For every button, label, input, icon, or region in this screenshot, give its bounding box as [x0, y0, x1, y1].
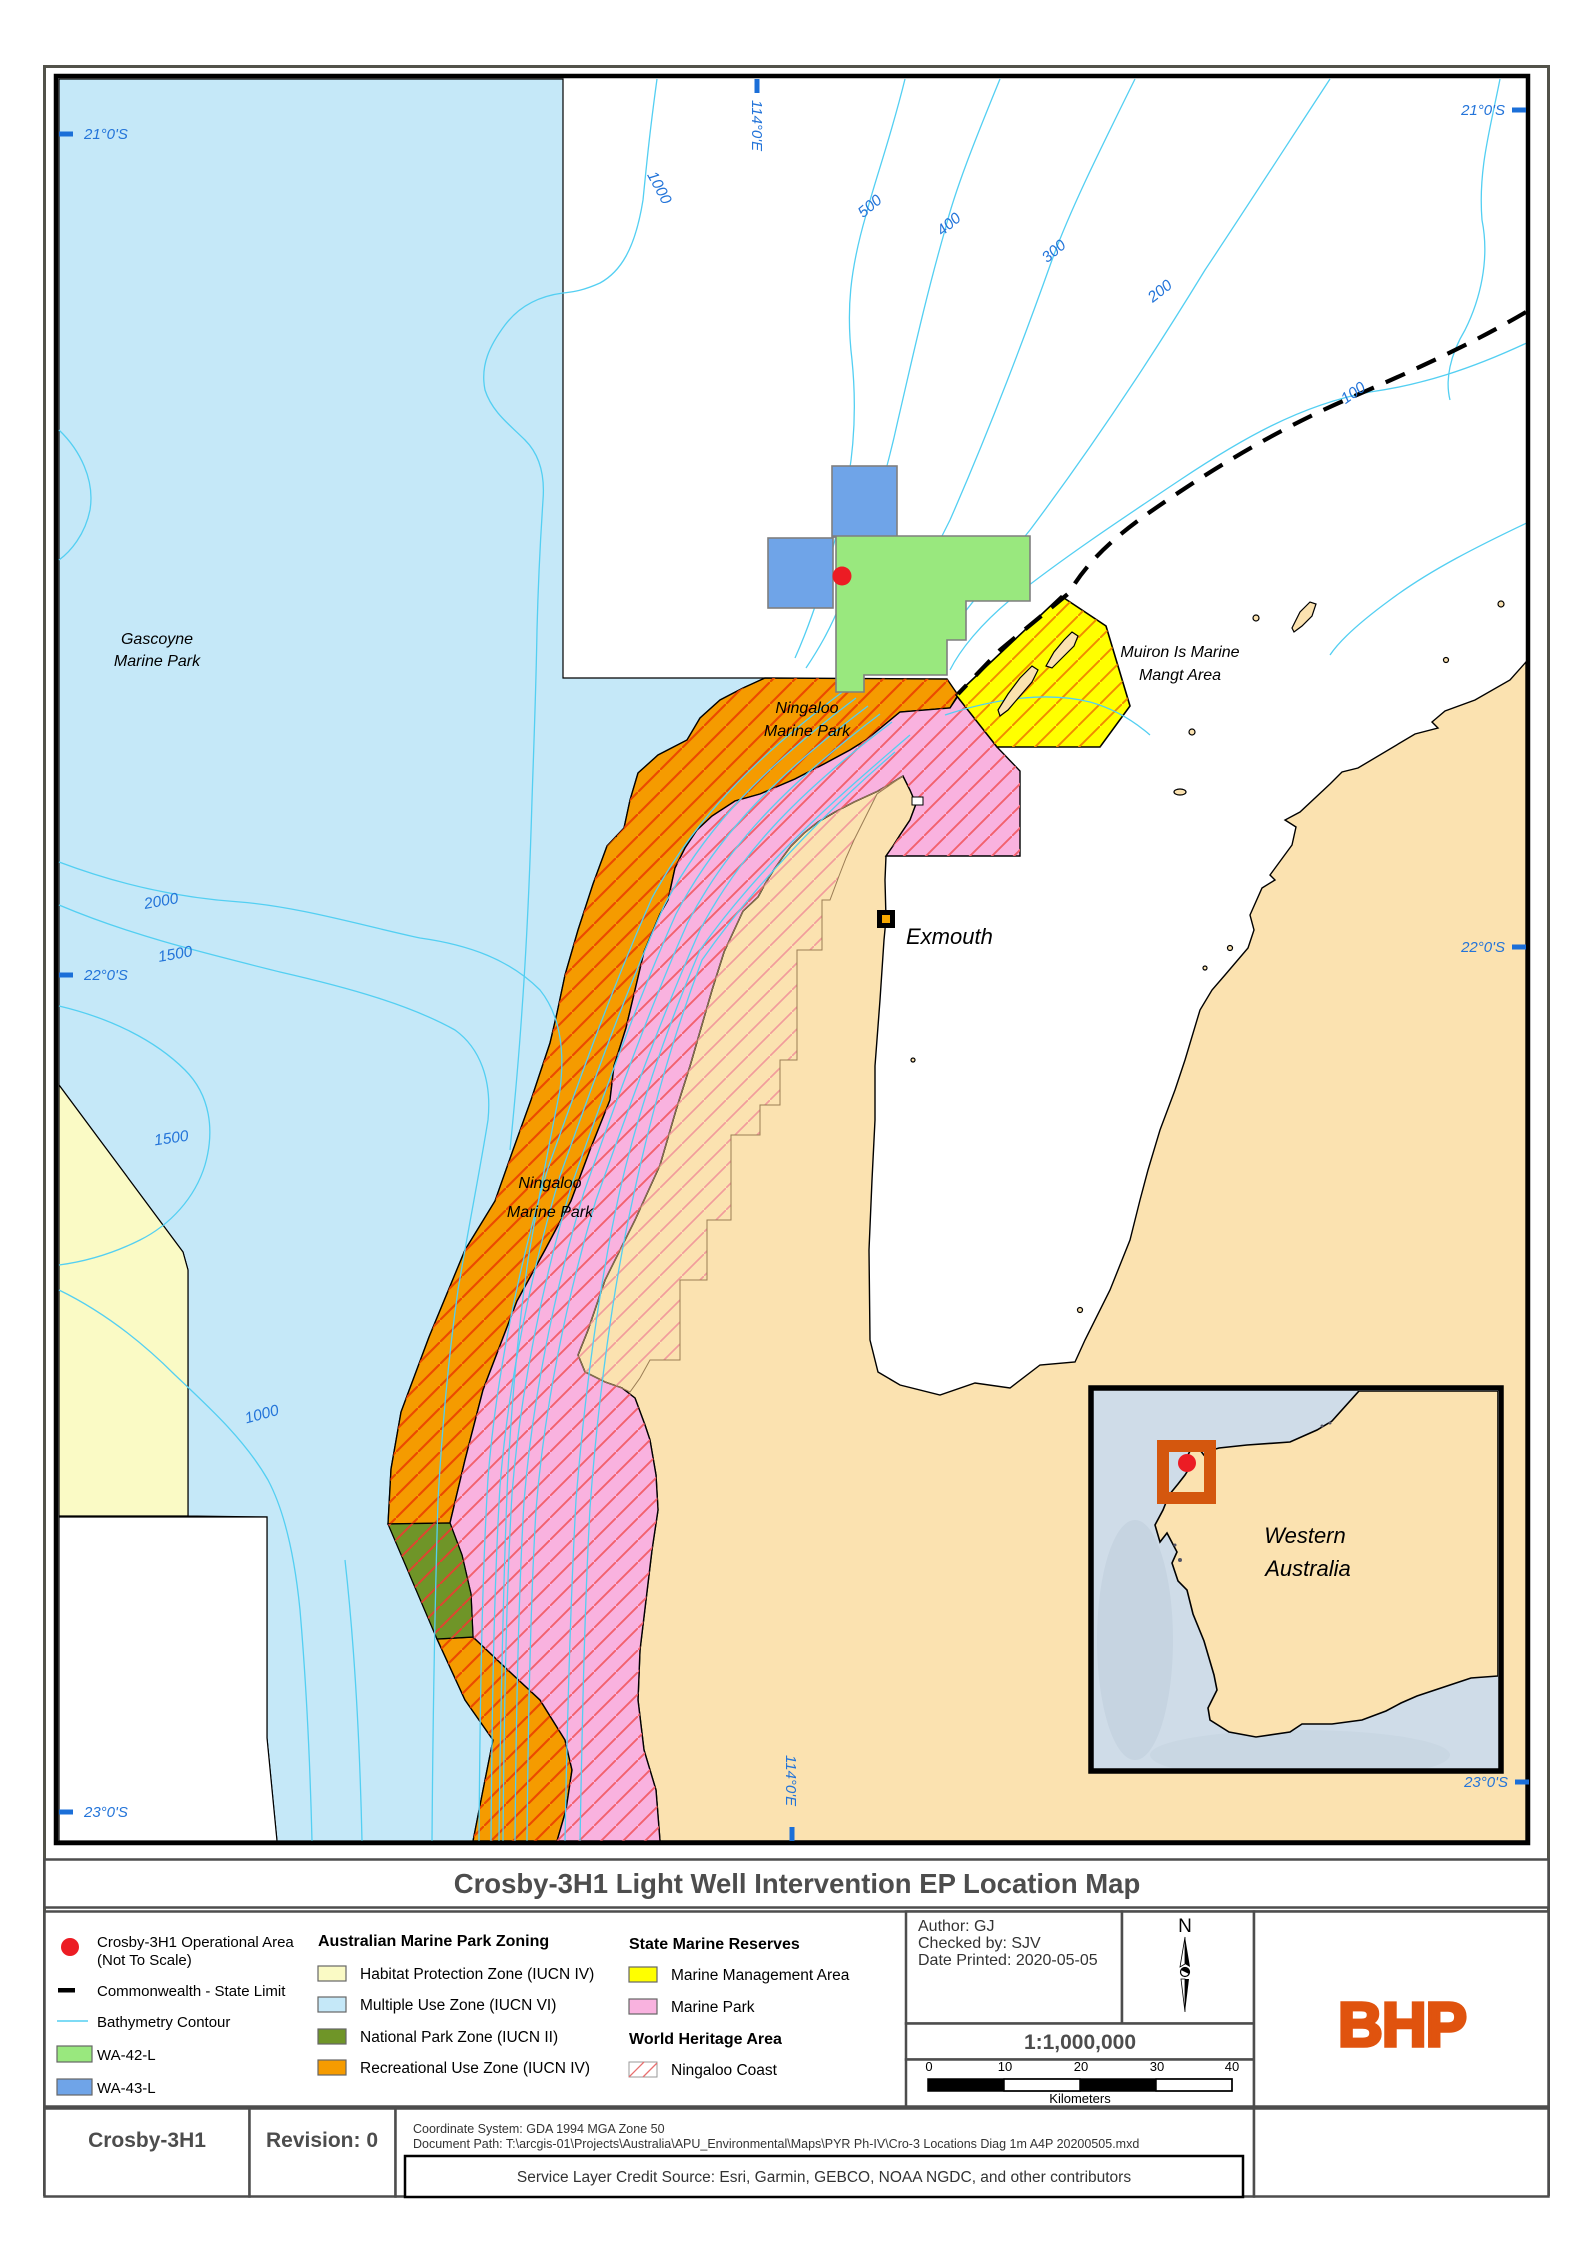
svg-text:Ningaloo: Ningaloo: [775, 700, 838, 717]
svg-text:Western: Western: [1264, 1523, 1346, 1548]
svg-text:Mangt Area: Mangt Area: [1139, 667, 1221, 684]
svg-text:Australian Marine Park Zoning: Australian Marine Park Zoning: [318, 1933, 549, 1950]
svg-text:Marine Park: Marine Park: [671, 1999, 755, 2016]
svg-text:114°0'E: 114°0'E: [748, 100, 765, 152]
svg-text:21°0'S: 21°0'S: [83, 126, 128, 143]
svg-text:Australia: Australia: [1263, 1556, 1351, 1581]
svg-text:Crosby-3H1 Operational Area: Crosby-3H1 Operational Area: [97, 1934, 294, 1951]
svg-text:Marine Management Area: Marine Management Area: [671, 1967, 850, 1984]
svg-text:23°0'S: 23°0'S: [1463, 1774, 1508, 1791]
svg-text:WA-42-L: WA-42-L: [97, 2047, 156, 2064]
svg-text:Document Path: T:\arcgis-01\Pr: Document Path: T:\arcgis-01\Projects\Aus…: [413, 2137, 1139, 2151]
svg-text:Ningaloo: Ningaloo: [518, 1175, 581, 1192]
svg-text:Kilometers: Kilometers: [1049, 2091, 1111, 2106]
svg-text:Date Printed: 2020-05-05: Date Printed: 2020-05-05: [918, 1952, 1098, 1969]
svg-text:Crosby-3H1 Light Well Interven: Crosby-3H1 Light Well Intervention EP Lo…: [454, 1868, 1141, 1899]
svg-text:(Not To Scale): (Not To Scale): [97, 1952, 192, 1969]
svg-text:Marine Park: Marine Park: [507, 1204, 594, 1221]
svg-text:22°0'S: 22°0'S: [83, 967, 128, 984]
svg-text:40: 40: [1225, 2059, 1239, 2074]
svg-text:10: 10: [998, 2059, 1012, 2074]
svg-text:21°0'S: 21°0'S: [1460, 102, 1505, 119]
svg-text:0: 0: [925, 2059, 932, 2074]
svg-text:Gascoyne: Gascoyne: [121, 631, 193, 648]
svg-text:BHP: BHP: [1338, 1991, 1466, 2060]
svg-text:Marine Park: Marine Park: [114, 653, 201, 670]
svg-text:Exmouth: Exmouth: [906, 924, 993, 949]
svg-text:Marine Park: Marine Park: [764, 723, 851, 740]
svg-text:World Heritage Area: World Heritage Area: [629, 2031, 782, 2048]
svg-text:Service Layer Credit Source: E: Service Layer Credit Source: Esri, Garmi…: [517, 2169, 1131, 2186]
svg-text:State Marine Reserves: State Marine Reserves: [629, 1936, 800, 1953]
svg-text:114°0'E: 114°0'E: [782, 1755, 799, 1807]
svg-text:Recreational Use Zone (IUCN IV: Recreational Use Zone (IUCN IV): [360, 2060, 590, 2077]
svg-text:Bathymetry Contour: Bathymetry Contour: [97, 2014, 230, 2031]
svg-text:Ningaloo Coast: Ningaloo Coast: [671, 2062, 778, 2079]
svg-text:Multiple Use Zone (IUCN VI): Multiple Use Zone (IUCN VI): [360, 1997, 556, 2014]
svg-text:Author: GJ: Author: GJ: [918, 1918, 994, 1935]
svg-text:20: 20: [1074, 2059, 1088, 2074]
svg-text:National Park Zone (IUCN II): National Park Zone (IUCN II): [360, 2029, 558, 2046]
svg-text:Muiron Is Marine: Muiron Is Marine: [1120, 644, 1239, 661]
svg-text:Checked by: SJV: Checked by: SJV: [918, 1935, 1041, 1952]
svg-text:22°0'S: 22°0'S: [1460, 939, 1505, 956]
svg-text:1:1,000,000: 1:1,000,000: [1024, 2031, 1136, 2054]
svg-text:WA-43-L: WA-43-L: [97, 2080, 156, 2097]
svg-text:Habitat Protection Zone (IUCN: Habitat Protection Zone (IUCN IV): [360, 1966, 594, 1983]
svg-text:Revision: 0: Revision: 0: [266, 2129, 378, 2152]
svg-text:Coordinate System: GDA 1994 MG: Coordinate System: GDA 1994 MGA Zone 50: [413, 2122, 665, 2136]
svg-text:Crosby-3H1: Crosby-3H1: [88, 2129, 206, 2152]
svg-text:Commonwealth - State Limit: Commonwealth - State Limit: [97, 1983, 286, 2000]
svg-text:23°0'S: 23°0'S: [83, 1804, 128, 1821]
svg-text:N: N: [1178, 1916, 1192, 1937]
svg-text:30: 30: [1150, 2059, 1164, 2074]
